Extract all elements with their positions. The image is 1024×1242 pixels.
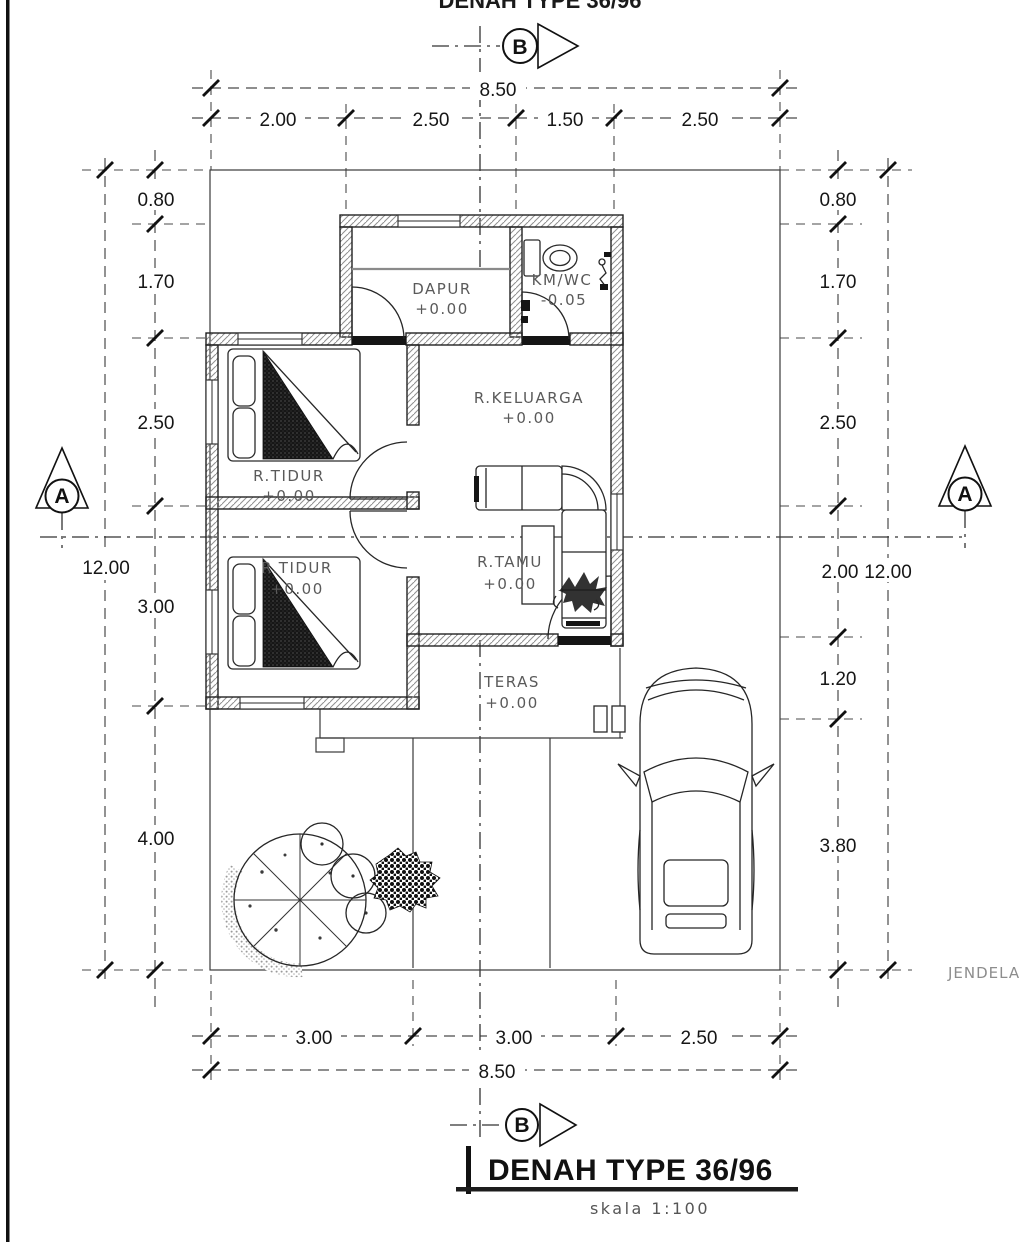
section-label-a: A [54,485,69,508]
teras-step [316,738,344,752]
drawing-title: DENAH TYPE 36/96 [488,1154,773,1187]
window-icon [398,215,460,227]
cropped-title-fragment: DENAH TYPE 36/96 [439,0,642,13]
dim-top-3: 1.50 [547,110,584,131]
room-label-keluarga: R.KELUARGA [474,389,584,407]
dim-bottom-1: 3.00 [296,1028,333,1049]
section-label-b: B [512,36,527,59]
room-level-dapur: +0.00 [415,300,468,318]
dim-left-total: 12.00 [82,558,130,579]
window-icon [206,380,218,444]
floor-plan-page: DENAH TYPE 36/96 [0,0,1024,1242]
room-label-tidur-2: R.TIDUR [261,559,333,577]
window-icon [611,494,623,550]
title-block: DENAH TYPE 36/96 skala 1:100 [456,1146,798,1218]
door-dapur [352,287,406,345]
teras-columns [594,706,625,732]
window-icon [238,333,302,345]
floor-plan-drawing: DENAH TYPE 36/96 [0,0,1024,1242]
room-level-tidur-1: +0.00 [262,487,315,505]
walkway-lines [316,648,623,968]
title-tick [466,1146,471,1194]
side-note-jendela: JENDELA K [947,964,1024,982]
window-icon [240,697,304,709]
dim-left-4: 3.00 [138,597,175,618]
dim-left-3: 2.50 [138,413,175,434]
room-level-teras: +0.00 [485,694,538,712]
dim-top-2: 2.50 [413,110,450,131]
room-label-kmwc: KM/WC [532,271,593,289]
dim-right-4: 2.00 [822,562,859,583]
room-label-dapur: DAPUR [412,280,472,298]
room-label-tamu: R.TAMU [477,553,543,571]
room-level-kmwc: -0.05 [541,291,587,309]
faucet-icon [599,252,611,290]
section-label-a: A [957,483,972,506]
dim-left-1: 0.80 [138,190,175,211]
bed-1 [228,349,360,461]
car-icon [618,668,774,954]
window-icon [206,590,218,654]
room-level-tidur-2: +0.00 [270,580,323,598]
dim-left-5: 4.00 [138,829,175,850]
dim-bottom-2: 3.00 [496,1028,533,1049]
dim-right-1: 0.80 [820,190,857,211]
dim-right-5: 1.20 [820,669,857,690]
section-marker-b-bottom: B [506,1104,576,1146]
dim-top-total: 8.50 [480,80,517,101]
dim-right-total: 12.00 [864,562,912,583]
tree-icon [228,834,366,970]
section-marker-b-top: B [503,24,578,68]
dim-bottom-total: 8.50 [479,1062,516,1083]
room-level-keluarga: +0.00 [502,409,555,427]
room-label-tidur-1: R.TIDUR [253,467,325,485]
dim-right-6: 3.80 [820,836,857,857]
title-underline [456,1187,798,1192]
drawing-scale: skala 1:100 [590,1199,710,1218]
room-level-tamu: +0.00 [483,575,536,593]
bush-icon [370,848,440,912]
dim-left-2: 1.70 [138,272,175,293]
dim-bottom-3: 2.50 [681,1028,718,1049]
section-marker-a-right: A [939,446,991,511]
dim-top-4: 2.50 [682,110,719,131]
room-label-teras: TERAS [483,673,540,691]
section-marker-a-left: A [36,448,88,513]
dim-right-3: 2.50 [820,413,857,434]
page-border-left [6,0,10,1242]
section-label-b: B [514,1114,529,1137]
dim-top-1: 2.00 [260,110,297,131]
dim-right-2: 1.70 [820,272,857,293]
